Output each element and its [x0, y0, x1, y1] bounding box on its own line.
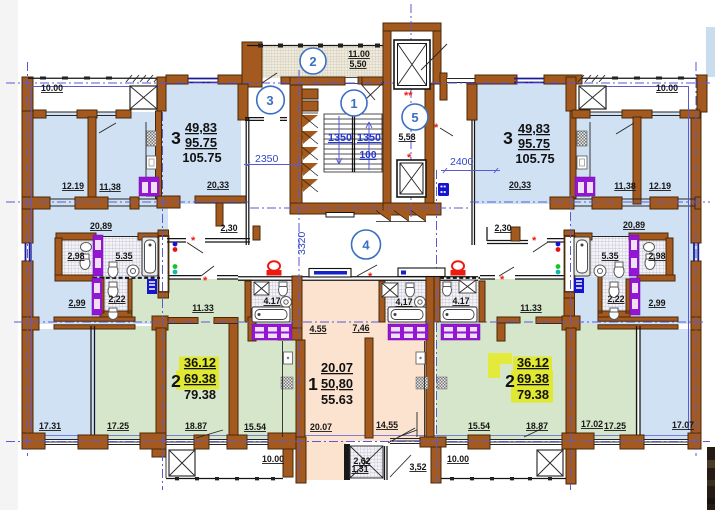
svg-text:10.00: 10.00	[447, 454, 469, 464]
svg-text:50,80: 50,80	[321, 376, 353, 391]
svg-text:20,89: 20,89	[623, 220, 645, 230]
svg-text:95.75: 95.75	[185, 135, 217, 150]
svg-text:17.07: 17.07	[672, 420, 694, 430]
svg-text:2400: 2400	[450, 156, 474, 168]
svg-text:11.33: 11.33	[192, 303, 214, 313]
svg-text:49,83: 49,83	[518, 121, 550, 136]
svg-text:20,89: 20,89	[90, 221, 112, 231]
svg-text:12.19: 12.19	[62, 181, 84, 191]
svg-text:*: *	[434, 122, 439, 134]
svg-text:15.54: 15.54	[468, 421, 490, 431]
svg-text:18.87: 18.87	[185, 421, 207, 431]
svg-text:4.55: 4.55	[309, 324, 326, 334]
svg-text:2,99: 2,99	[68, 298, 85, 308]
svg-text:3: 3	[171, 128, 181, 148]
svg-text:*: *	[500, 274, 505, 286]
svg-text:11,38: 11,38	[614, 181, 636, 191]
svg-text:2: 2	[505, 371, 515, 391]
svg-text:12.19: 12.19	[649, 181, 671, 191]
svg-text:*: *	[368, 271, 373, 283]
svg-text:3: 3	[503, 128, 513, 148]
svg-text:18.87: 18.87	[526, 421, 548, 431]
svg-text:2,22: 2,22	[607, 294, 624, 304]
svg-text:17.31: 17.31	[39, 421, 61, 431]
svg-text:49,83: 49,83	[185, 120, 217, 135]
svg-text:3320: 3320	[296, 231, 308, 255]
svg-text:*: *	[532, 235, 537, 247]
svg-text:95.75: 95.75	[518, 136, 550, 151]
svg-text:11,38: 11,38	[99, 182, 121, 192]
svg-text:10.00: 10.00	[41, 83, 63, 93]
svg-text:14,55: 14,55	[376, 420, 398, 430]
svg-text:17.25: 17.25	[604, 421, 626, 431]
svg-text:69.38: 69.38	[517, 371, 549, 386]
svg-text:3: 3	[266, 93, 273, 108]
svg-text:20,33: 20,33	[207, 180, 229, 190]
svg-text:79.38: 79.38	[517, 387, 549, 402]
svg-text:105.75: 105.75	[515, 151, 554, 166]
svg-text:17.25: 17.25	[107, 421, 129, 431]
svg-text:105.75: 105.75	[182, 150, 221, 165]
svg-text:20.07: 20.07	[310, 422, 332, 432]
svg-text:4,17: 4,17	[395, 297, 412, 307]
svg-text:2,98: 2,98	[648, 251, 665, 261]
svg-text:**: **	[404, 90, 413, 102]
svg-text:*: *	[203, 275, 208, 287]
svg-text:2: 2	[171, 371, 181, 391]
svg-text:2,99: 2,99	[648, 298, 665, 308]
svg-text:2,22: 2,22	[108, 294, 125, 304]
svg-text:17.02: 17.02	[581, 419, 603, 429]
svg-text:1: 1	[308, 374, 318, 394]
svg-text:3,52: 3,52	[409, 462, 426, 472]
svg-text:*: *	[407, 152, 412, 164]
svg-text:2,30: 2,30	[494, 223, 511, 233]
svg-text:1: 1	[350, 96, 357, 111]
svg-text:69.38: 69.38	[184, 371, 216, 386]
svg-text:4: 4	[362, 238, 370, 253]
svg-text:55.63: 55.63	[321, 392, 353, 407]
svg-text:79.38: 79.38	[184, 387, 216, 402]
svg-text:7,46: 7,46	[352, 323, 369, 333]
svg-text:11.33: 11.33	[520, 303, 542, 313]
svg-text:5.35: 5.35	[601, 251, 618, 261]
svg-text:1,31: 1,31	[351, 464, 368, 474]
svg-text:5: 5	[411, 110, 418, 125]
svg-text:36.12: 36.12	[517, 355, 549, 370]
svg-text:15.54: 15.54	[244, 422, 266, 432]
svg-text:1350: 1350	[357, 132, 381, 144]
svg-text:4.17: 4.17	[263, 296, 280, 306]
svg-text:36.12: 36.12	[184, 355, 216, 370]
svg-text:1350: 1350	[328, 132, 352, 144]
svg-text:5.35: 5.35	[115, 251, 132, 261]
svg-text:5,50: 5,50	[349, 59, 366, 69]
svg-text:20.07: 20.07	[321, 360, 353, 375]
svg-text:10.00: 10.00	[262, 454, 284, 464]
svg-text:2,98: 2,98	[67, 251, 84, 261]
svg-text:2: 2	[309, 54, 316, 69]
svg-text:4.17: 4.17	[452, 296, 469, 306]
svg-text:10.00: 10.00	[656, 83, 678, 93]
svg-text:5,58: 5,58	[398, 132, 415, 142]
svg-text:2,30: 2,30	[220, 223, 237, 233]
svg-text:100: 100	[360, 150, 377, 161]
svg-text:2350: 2350	[255, 153, 279, 165]
svg-text:20,33: 20,33	[509, 180, 531, 190]
svg-text:11.00: 11.00	[348, 49, 370, 59]
